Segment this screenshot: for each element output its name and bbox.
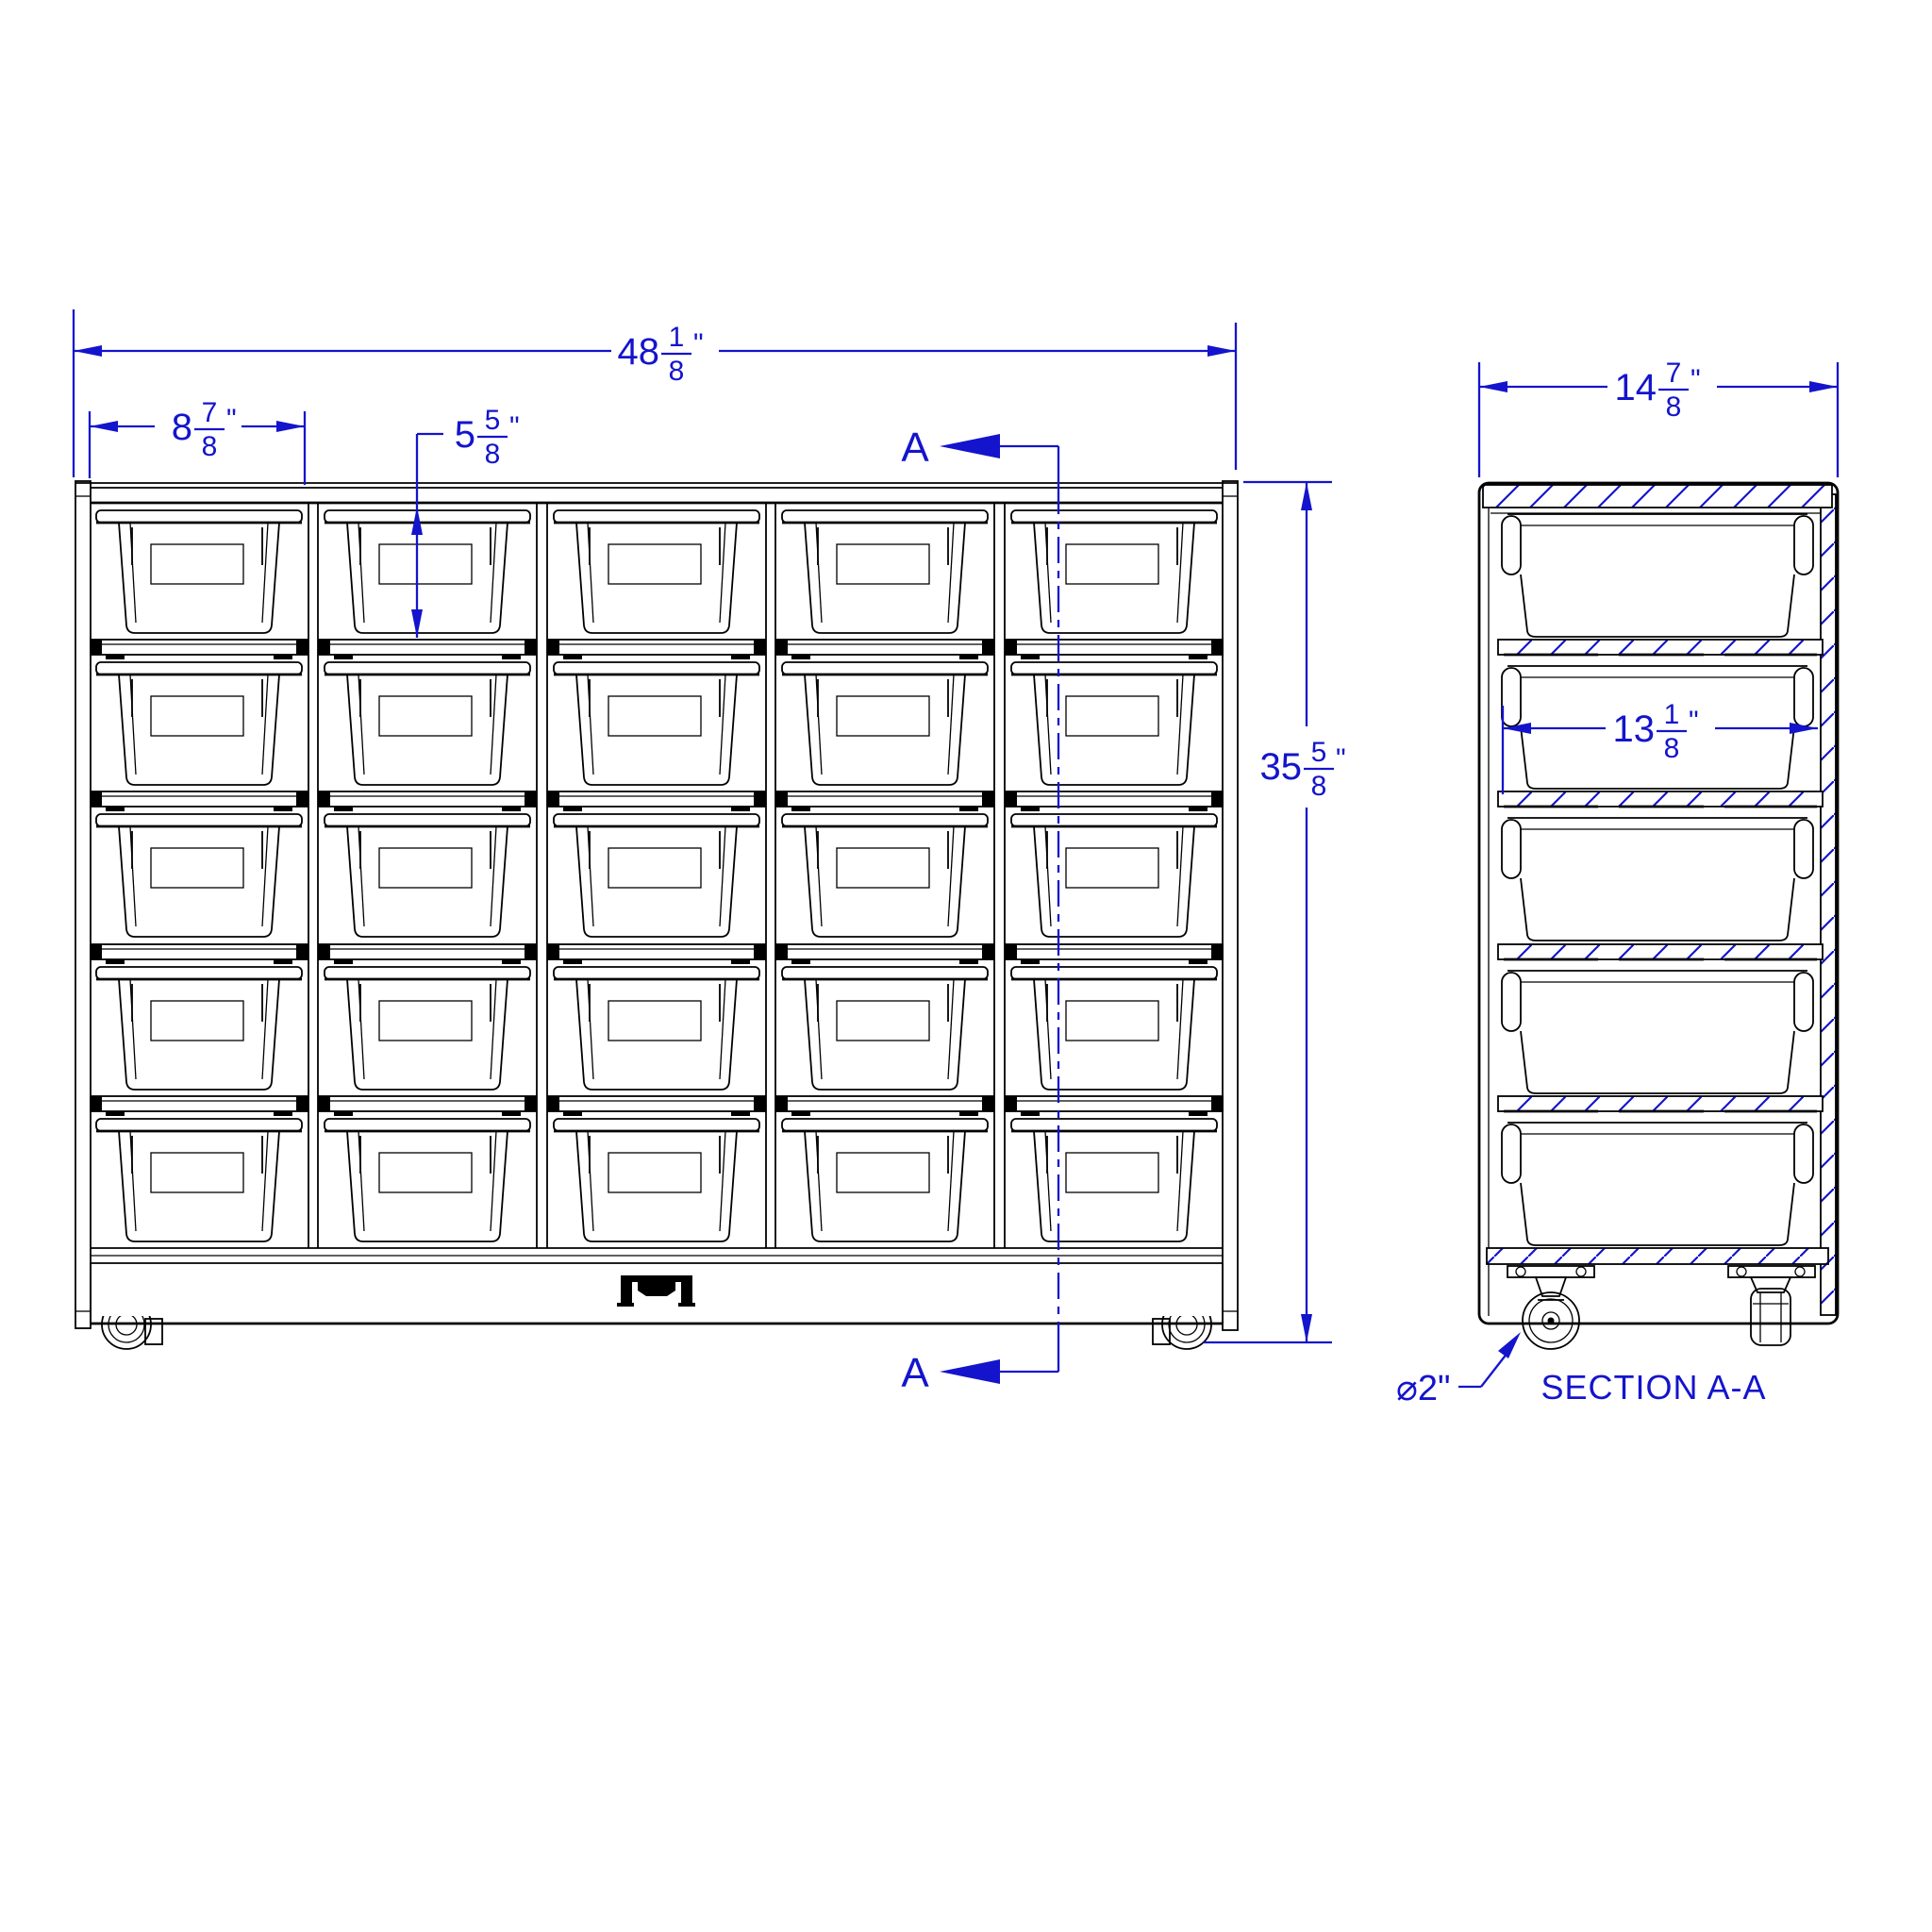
front-bins: [96, 510, 1217, 1241]
dim-text: 5: [485, 405, 501, 436]
dim-label-overall-height: 35 5 8 ": [1260, 737, 1346, 802]
section-marker-bottom: A: [901, 1350, 929, 1396]
dim-text: ": [1689, 706, 1699, 737]
dim-text: 8: [485, 439, 501, 470]
front-right-trim: [1223, 481, 1238, 1330]
front-shelves: [91, 640, 1223, 1116]
front-left-trim: [75, 481, 91, 1328]
dim-text: ": [226, 404, 237, 435]
dim-text: 14: [1615, 367, 1657, 408]
dim-text: ": [509, 411, 520, 442]
section-top-board: [1483, 485, 1832, 508]
dim-text: 5: [1311, 737, 1327, 768]
latch-hardware: [617, 1275, 695, 1307]
section-view: [1479, 483, 1838, 1349]
dim-text: 8: [1664, 733, 1680, 764]
front-view: [75, 481, 1238, 1349]
section-bins: [1502, 514, 1813, 1245]
dimension-bin-width: 13 1 8 ": [1503, 699, 1818, 794]
dim-text: 5: [455, 414, 475, 456]
dim-text: 8: [172, 407, 192, 448]
caster-diameter-label: ⌀2": [1396, 1369, 1451, 1408]
dim-text: 8: [669, 356, 685, 387]
dimension-overall-width: 48 1 8 ": [74, 309, 1236, 477]
dim-text: 35: [1260, 746, 1303, 788]
dim-text: 7: [1666, 358, 1682, 389]
section-shelves: [1498, 640, 1823, 1111]
dim-text: 48: [618, 331, 660, 373]
dim-text: 1: [669, 322, 685, 353]
dim-text: 8: [1311, 771, 1327, 802]
dim-text: 13: [1613, 708, 1656, 750]
dim-text: 1: [1664, 699, 1680, 730]
dimension-cubby-width: 8 7 8 ": [90, 397, 305, 485]
dim-label-bin-width: 13 1 8 ": [1613, 699, 1699, 764]
section-title: SECTION A-A: [1541, 1368, 1766, 1407]
dim-label-section-depth: 14 7 8 ": [1615, 358, 1701, 423]
dim-text: ": [693, 328, 704, 359]
dim-label-overall-width: 48 1 8 ": [618, 322, 704, 387]
dim-text: ": [1690, 364, 1701, 395]
technical-drawing: 48 1 8 " 8 7 8 " 5 5 8: [0, 0, 1932, 1932]
section-back-panel: [1821, 494, 1836, 1315]
drawing-canvas: 48 1 8 " 8 7 8 " 5 5 8: [0, 0, 1932, 1932]
caster-side-swivel: [1728, 1266, 1815, 1345]
section-outline: [1479, 483, 1838, 1324]
dimension-section-depth: 14 7 8 ": [1479, 358, 1838, 477]
section-marker-top: A: [901, 425, 929, 471]
dim-label-cubby-width: 8 7 8 ": [172, 397, 237, 462]
dim-text: 8: [202, 431, 218, 462]
dim-text: ": [1336, 743, 1346, 774]
front-top-rail: [75, 483, 1238, 503]
dim-label-opening-height: 5 5 8 ": [455, 405, 520, 470]
caster-front-swivel: [1507, 1266, 1594, 1349]
dim-text: 8: [1666, 391, 1682, 423]
dimension-caster-diameter: ⌀2": [1396, 1332, 1521, 1408]
section-bottom-board: [1487, 1248, 1828, 1264]
section-casters: [1507, 1266, 1815, 1349]
section-cut-line: A A: [901, 425, 1058, 1396]
dimension-opening-height: 5 5 8 ": [411, 405, 520, 638]
dim-text: 7: [202, 397, 218, 428]
dimension-overall-height: 35 5 8 ": [1204, 482, 1346, 1342]
